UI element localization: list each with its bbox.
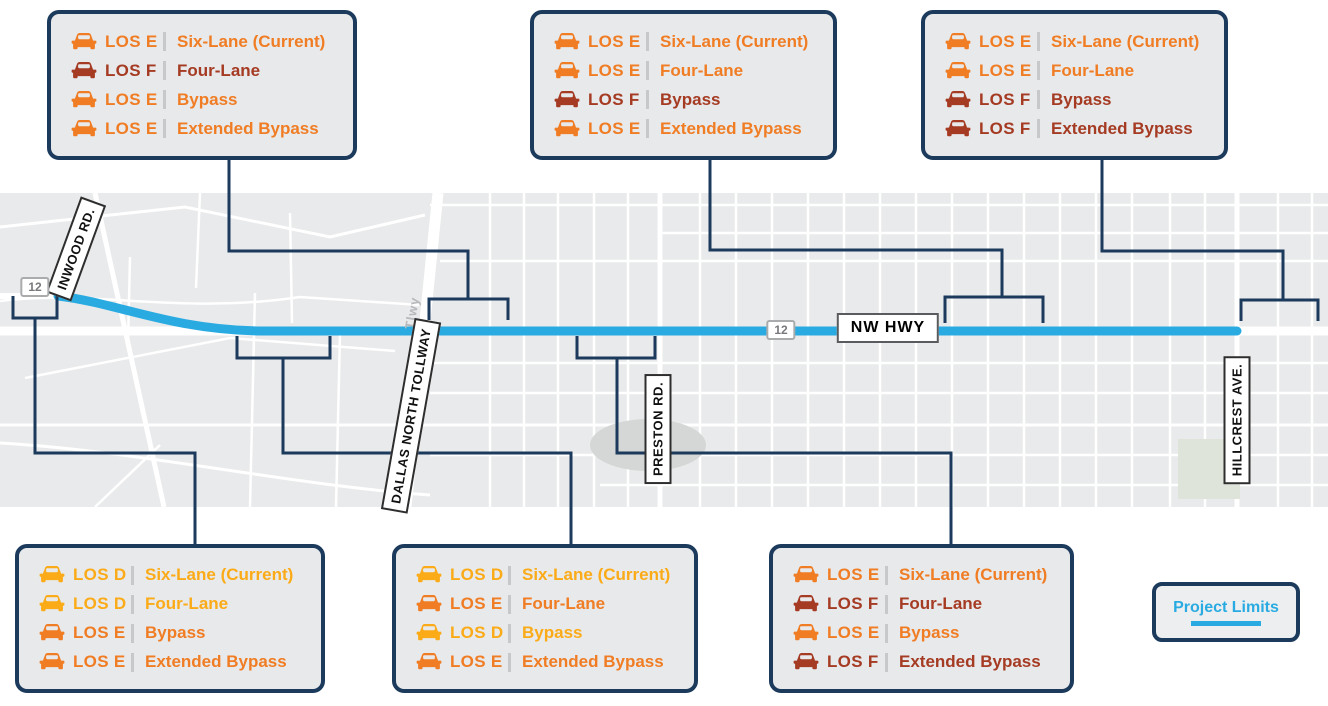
- los-row: LOS ESix-Lane (Current): [945, 32, 1214, 52]
- car-icon: [416, 565, 442, 585]
- scenario-label: Extended Bypass: [660, 119, 802, 139]
- los-row: LOS EBypass: [793, 623, 1060, 643]
- los-row: LOS FFour-Lane: [71, 61, 343, 81]
- los-grade-label: LOS D: [73, 565, 129, 585]
- car-icon: [554, 61, 580, 81]
- los-grade-label: LOS E: [588, 32, 644, 52]
- los-callout-top-left: LOS ESix-Lane (Current)LOS FFour-LaneLOS…: [47, 10, 357, 160]
- los-row: LOS DSix-Lane (Current): [416, 565, 684, 585]
- car-icon: [416, 623, 442, 643]
- row-divider: [508, 595, 511, 614]
- los-grade-label: LOS E: [979, 61, 1035, 81]
- car-icon: [793, 623, 819, 643]
- los-row: LOS EBypass: [71, 90, 343, 110]
- car-icon: [416, 594, 442, 614]
- los-grade-label: LOS F: [105, 61, 161, 81]
- scenario-label: Four-Lane: [522, 594, 605, 614]
- los-grade-label: LOS F: [827, 594, 883, 614]
- row-divider: [646, 61, 649, 80]
- scenario-label: Four-Lane: [660, 61, 743, 81]
- los-grade-label: LOS E: [827, 565, 883, 585]
- row-divider: [131, 566, 134, 585]
- preston-rd-label: PRESTON RD.: [645, 374, 672, 484]
- scenario-label: Four-Lane: [899, 594, 982, 614]
- los-row: LOS EExtended Bypass: [416, 652, 684, 672]
- los-grade-label: LOS D: [450, 623, 506, 643]
- scenario-label: Bypass: [145, 623, 205, 643]
- scenario-label: Extended Bypass: [522, 652, 664, 672]
- row-divider: [885, 624, 888, 643]
- car-icon: [39, 623, 65, 643]
- row-divider: [163, 32, 166, 51]
- car-icon: [554, 32, 580, 52]
- project-limits-label: Project Limits: [1173, 599, 1279, 617]
- los-row: LOS EBypass: [39, 623, 311, 643]
- scenario-label: Six-Lane (Current): [1051, 32, 1199, 52]
- los-callout-bottom-center: LOS DSix-Lane (Current)LOS EFour-LaneLOS…: [392, 544, 698, 693]
- car-icon: [71, 61, 97, 81]
- los-grade-label: LOS E: [105, 32, 161, 52]
- car-icon: [945, 119, 971, 139]
- row-divider: [508, 566, 511, 585]
- scenario-label: Bypass: [177, 90, 237, 110]
- row-divider: [508, 624, 511, 643]
- car-icon: [554, 119, 580, 139]
- los-grade-label: LOS E: [827, 623, 883, 643]
- los-row: LOS DSix-Lane (Current): [39, 565, 311, 585]
- car-icon: [71, 32, 97, 52]
- row-divider: [131, 624, 134, 643]
- car-icon: [945, 90, 971, 110]
- scenario-label: Four-Lane: [177, 61, 260, 81]
- los-row: LOS EFour-Lane: [554, 61, 823, 81]
- scenario-label: Extended Bypass: [899, 652, 1041, 672]
- car-icon: [416, 652, 442, 672]
- scenario-label: Bypass: [522, 623, 582, 643]
- los-row: LOS FExtended Bypass: [945, 119, 1214, 139]
- row-divider: [885, 653, 888, 672]
- scenario-label: Extended Bypass: [1051, 119, 1193, 139]
- los-callout-bottom-left: LOS DSix-Lane (Current)LOS DFour-LaneLOS…: [15, 544, 325, 693]
- los-grade-label: LOS E: [73, 652, 129, 672]
- scenario-label: Six-Lane (Current): [522, 565, 670, 585]
- los-row: LOS DBypass: [416, 623, 684, 643]
- los-row: LOS EExtended Bypass: [39, 652, 311, 672]
- car-icon: [39, 652, 65, 672]
- los-row: LOS ESix-Lane (Current): [71, 32, 343, 52]
- los-grade-label: LOS E: [105, 90, 161, 110]
- scenario-label: Four-Lane: [145, 594, 228, 614]
- row-divider: [885, 566, 888, 585]
- row-divider: [885, 595, 888, 614]
- los-row: LOS FBypass: [554, 90, 823, 110]
- los-callout-top-right: LOS ESix-Lane (Current)LOS EFour-LaneLOS…: [921, 10, 1228, 160]
- los-callout-top-center: LOS ESix-Lane (Current)LOS EFour-LaneLOS…: [530, 10, 837, 160]
- row-divider: [163, 119, 166, 138]
- row-divider: [1037, 119, 1040, 138]
- project-limits-legend: Project Limits: [1152, 582, 1300, 642]
- los-row: LOS FBypass: [945, 90, 1214, 110]
- los-row: LOS FFour-Lane: [793, 594, 1060, 614]
- los-grade-label: LOS E: [588, 119, 644, 139]
- route-12-shield-west: 12: [20, 277, 49, 297]
- row-divider: [646, 90, 649, 109]
- row-divider: [508, 653, 511, 672]
- row-divider: [131, 653, 134, 672]
- los-grade-label: LOS E: [450, 652, 506, 672]
- row-divider: [1037, 61, 1040, 80]
- car-icon: [554, 90, 580, 110]
- row-divider: [163, 61, 166, 80]
- scenario-label: Bypass: [660, 90, 720, 110]
- los-grade-label: LOS E: [450, 594, 506, 614]
- car-icon: [945, 32, 971, 52]
- car-icon: [71, 119, 97, 139]
- los-grade-label: LOS F: [979, 119, 1035, 139]
- los-row: LOS DFour-Lane: [39, 594, 311, 614]
- los-row: LOS ESix-Lane (Current): [793, 565, 1060, 585]
- los-grade-label: LOS F: [827, 652, 883, 672]
- scenario-label: Bypass: [1051, 90, 1111, 110]
- infographic-canvas: Tlwy INWOOD RD. DALLAS NORTH TOLLWAY PRE…: [0, 0, 1328, 706]
- scenario-label: Six-Lane (Current): [177, 32, 325, 52]
- los-grade-label: LOS E: [588, 61, 644, 81]
- los-row: LOS ESix-Lane (Current): [554, 32, 823, 52]
- scenario-label: Bypass: [899, 623, 959, 643]
- row-divider: [646, 119, 649, 138]
- los-grade-label: LOS F: [588, 90, 644, 110]
- row-divider: [1037, 32, 1040, 51]
- los-row: LOS EExtended Bypass: [71, 119, 343, 139]
- los-grade-label: LOS E: [105, 119, 161, 139]
- los-grade-label: LOS F: [979, 90, 1035, 110]
- los-row: LOS EFour-Lane: [945, 61, 1214, 81]
- car-icon: [71, 90, 97, 110]
- row-divider: [131, 595, 134, 614]
- los-grade-label: LOS E: [979, 32, 1035, 52]
- row-divider: [163, 90, 166, 109]
- scenario-label: Six-Lane (Current): [145, 565, 293, 585]
- scenario-label: Four-Lane: [1051, 61, 1134, 81]
- car-icon: [39, 565, 65, 585]
- los-row: LOS EExtended Bypass: [554, 119, 823, 139]
- car-icon: [793, 565, 819, 585]
- car-icon: [793, 594, 819, 614]
- los-callout-bottom-right: LOS ESix-Lane (Current)LOS FFour-LaneLOS…: [769, 544, 1074, 693]
- scenario-label: Six-Lane (Current): [899, 565, 1047, 585]
- car-icon: [945, 61, 971, 81]
- car-icon: [39, 594, 65, 614]
- los-grade-label: LOS D: [73, 594, 129, 614]
- los-grade-label: LOS E: [73, 623, 129, 643]
- scenario-label: Extended Bypass: [177, 119, 319, 139]
- los-row: LOS FExtended Bypass: [793, 652, 1060, 672]
- scenario-label: Six-Lane (Current): [660, 32, 808, 52]
- route-12-shield-center: 12: [766, 320, 795, 340]
- project-limits-line-swatch: [1191, 621, 1261, 626]
- los-row: LOS EFour-Lane: [416, 594, 684, 614]
- los-grade-label: LOS D: [450, 565, 506, 585]
- nw-hwy-label: NW HWY: [837, 313, 939, 343]
- row-divider: [646, 32, 649, 51]
- hillcrest-ave-label: HILLCREST AVE.: [1224, 356, 1251, 484]
- car-icon: [793, 652, 819, 672]
- scenario-label: Extended Bypass: [145, 652, 287, 672]
- row-divider: [1037, 90, 1040, 109]
